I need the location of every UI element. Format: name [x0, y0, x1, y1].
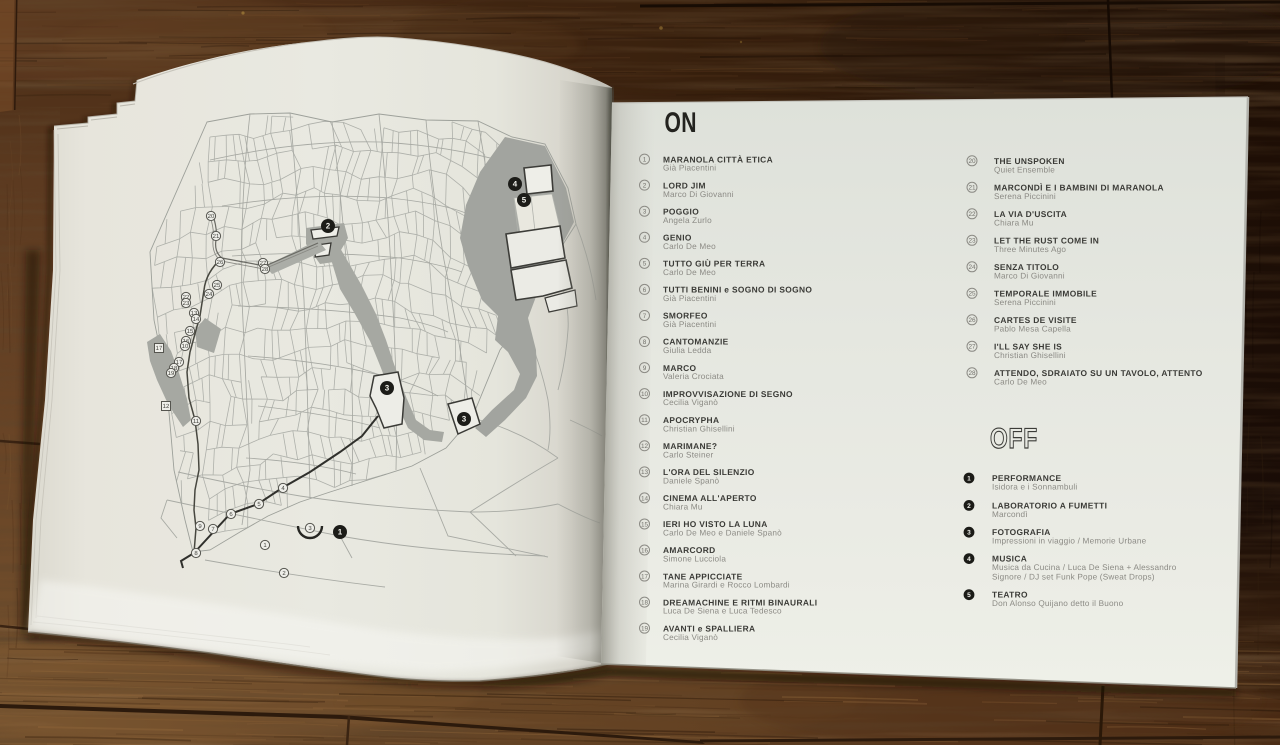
svg-text:Luca De Siena e Luca Tedesco: Luca De Siena e Luca Tedesco: [663, 607, 782, 616]
svg-text:14: 14: [193, 316, 200, 323]
svg-text:11: 11: [193, 418, 200, 425]
svg-text:23: 23: [968, 238, 976, 245]
svg-text:3: 3: [643, 209, 647, 216]
svg-text:6: 6: [643, 287, 647, 294]
svg-text:19: 19: [168, 370, 175, 377]
svg-text:Valeria Crociata: Valeria Crociata: [663, 372, 724, 381]
svg-text:21: 21: [213, 233, 220, 240]
svg-text:Serena Piccinini: Serena Piccinini: [994, 298, 1056, 307]
svg-text:14: 14: [641, 495, 649, 502]
svg-text:Già Piacentini: Già Piacentini: [663, 164, 716, 173]
svg-text:17: 17: [641, 573, 649, 580]
svg-text:2: 2: [326, 222, 331, 231]
svg-text:10: 10: [182, 343, 189, 350]
svg-text:5: 5: [522, 196, 527, 205]
svg-text:4: 4: [967, 556, 971, 563]
svg-text:5: 5: [967, 592, 971, 599]
svg-text:Carlo Steiner: Carlo Steiner: [663, 450, 713, 459]
svg-text:7: 7: [643, 313, 647, 320]
svg-text:3: 3: [385, 384, 390, 393]
svg-text:3: 3: [967, 530, 971, 537]
svg-text:Già Piacentini: Già Piacentini: [663, 320, 716, 329]
svg-text:Carlo De Meo e Daniele Spanò: Carlo De Meo e Daniele Spanò: [663, 529, 782, 538]
svg-text:Angela Zurlo: Angela Zurlo: [663, 216, 712, 225]
svg-text:27: 27: [968, 344, 976, 351]
svg-text:5: 5: [643, 261, 647, 268]
svg-text:Marina Girardi e Rocco Lombard: Marina Girardi e Rocco Lombardi: [663, 581, 790, 590]
svg-text:15: 15: [187, 328, 194, 335]
svg-text:Chiara Mu: Chiara Mu: [994, 218, 1034, 227]
svg-text:Impressioni in viaggio / Memor: Impressioni in viaggio / Memorie Urbane: [992, 537, 1147, 546]
svg-text:Chiara Mu: Chiara Mu: [663, 502, 703, 511]
svg-text:24: 24: [968, 264, 976, 271]
svg-text:OFF: OFF: [990, 423, 1038, 455]
svg-text:Christian Ghisellini: Christian Ghisellini: [994, 351, 1066, 360]
svg-text:21: 21: [968, 185, 976, 192]
svg-text:2: 2: [643, 183, 647, 190]
svg-text:Cecilia Viganò: Cecilia Viganò: [663, 398, 718, 407]
svg-text:Simone Lucciola: Simone Lucciola: [663, 555, 726, 564]
svg-text:Carlo De Meo: Carlo De Meo: [663, 268, 716, 277]
svg-text:10: 10: [641, 391, 649, 398]
svg-text:Isidora e i Sonnambuli: Isidora e i Sonnambuli: [992, 482, 1077, 491]
svg-text:Marcondì: Marcondì: [992, 510, 1028, 519]
svg-text:4: 4: [643, 235, 647, 242]
svg-text:9: 9: [643, 365, 647, 372]
svg-text:Serena Piccinini: Serena Piccinini: [994, 192, 1056, 201]
svg-text:Christian Ghisellini: Christian Ghisellini: [663, 424, 735, 433]
svg-text:26: 26: [217, 259, 224, 266]
svg-text:Già Piacentini: Già Piacentini: [663, 294, 716, 303]
svg-text:Signore / DJ set Funk Pope (Sw: Signore / DJ set Funk Pope (Sweat Drops): [992, 573, 1155, 582]
svg-text:12: 12: [163, 403, 170, 410]
svg-text:Three Minutes Ago: Three Minutes Ago: [994, 245, 1066, 254]
svg-text:Musica da Cucina / Luca De Sie: Musica da Cucina / Luca De Siena + Aless…: [992, 563, 1177, 572]
svg-text:Cecilia Viganò: Cecilia Viganò: [663, 633, 718, 642]
svg-text:15: 15: [641, 521, 649, 528]
svg-text:28: 28: [262, 266, 269, 273]
svg-text:3: 3: [462, 415, 467, 424]
svg-text:17: 17: [156, 345, 163, 352]
svg-text:2: 2: [967, 503, 971, 510]
svg-text:13: 13: [641, 469, 649, 476]
svg-text:Quiet Ensemble: Quiet Ensemble: [994, 165, 1055, 174]
svg-text:Carlo De Meo: Carlo De Meo: [994, 377, 1047, 386]
svg-text:20: 20: [208, 213, 215, 220]
svg-text:Daniele Spanò: Daniele Spanò: [663, 476, 720, 485]
svg-text:22: 22: [968, 211, 976, 218]
svg-text:28: 28: [968, 370, 976, 377]
svg-text:1: 1: [338, 528, 343, 537]
svg-text:24: 24: [206, 291, 213, 298]
svg-text:11: 11: [641, 417, 648, 424]
svg-text:20: 20: [968, 158, 976, 165]
svg-text:16: 16: [641, 547, 649, 554]
svg-text:8: 8: [643, 339, 647, 346]
svg-text:Marco Di Giovanni: Marco Di Giovanni: [994, 271, 1065, 280]
svg-text:23: 23: [183, 300, 190, 307]
svg-text:18: 18: [641, 600, 649, 607]
svg-text:Don Alonso Quijano detto il Bu: Don Alonso Quijano detto il Buono: [992, 599, 1124, 608]
svg-text:26: 26: [968, 317, 976, 324]
svg-text:4: 4: [513, 180, 518, 189]
svg-text:Giulia Ledda: Giulia Ledda: [663, 346, 712, 355]
svg-text:Carlo De Meo: Carlo De Meo: [663, 242, 716, 251]
svg-text:Marco Di Giovanni: Marco Di Giovanni: [663, 190, 734, 199]
svg-text:25: 25: [214, 282, 221, 289]
svg-text:12: 12: [641, 443, 649, 450]
svg-text:25: 25: [968, 291, 976, 298]
svg-text:1: 1: [967, 476, 971, 483]
svg-text:Pablo Mesa Capella: Pablo Mesa Capella: [994, 324, 1071, 333]
svg-text:ON: ON: [665, 107, 697, 139]
svg-text:19: 19: [641, 626, 649, 633]
svg-text:1: 1: [643, 157, 647, 164]
